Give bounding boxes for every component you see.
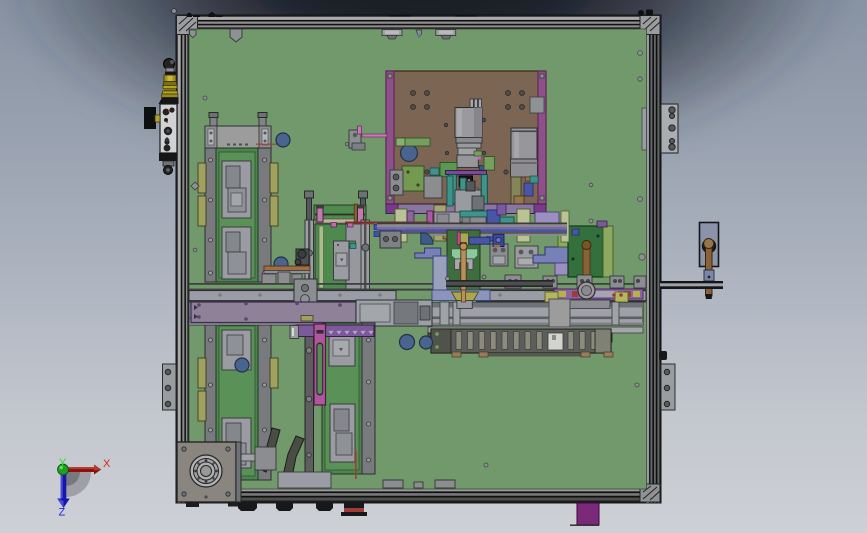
svg-text:X: X xyxy=(103,458,111,470)
svg-text:Y: Y xyxy=(59,457,67,469)
svg-text:Z: Z xyxy=(59,507,66,519)
